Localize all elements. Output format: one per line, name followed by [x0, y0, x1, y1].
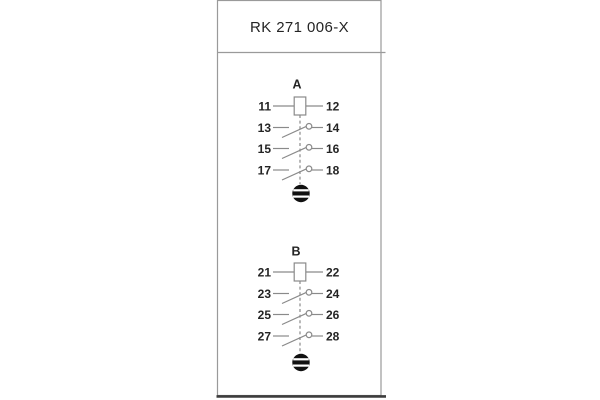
- page-title: RK 271 006-X: [250, 19, 349, 36]
- contact-row: 17 18: [258, 163, 340, 180]
- terminal-label: 21: [258, 265, 272, 279]
- contact-row: 27 28: [258, 329, 340, 346]
- terminal-label: 27: [258, 329, 272, 343]
- relay-coil-symbol: [294, 97, 306, 115]
- terminal-label: 23: [258, 287, 272, 301]
- terminal-label: 24: [326, 287, 340, 301]
- contact-row: 15 16: [258, 142, 340, 159]
- contact-point: [306, 290, 312, 296]
- terminal-label: 15: [258, 142, 272, 156]
- coil-row: 11 12: [258, 97, 339, 115]
- terminal-label: 17: [258, 163, 272, 177]
- section-label: B: [291, 245, 300, 259]
- relay-coil-symbol: [294, 263, 306, 281]
- terminal-label: 28: [326, 329, 340, 343]
- contact-point: [306, 145, 312, 151]
- terminal-label: 16: [326, 142, 340, 156]
- datasheet-page: RK 271 006-X A 11 12 13 14: [0, 0, 600, 400]
- contact-point: [306, 124, 312, 130]
- striped-circle-indicator-icon: [292, 354, 309, 371]
- schematic-svg: RK 271 006-X A 11 12 13 14: [0, 0, 600, 400]
- terminal-label: 11: [258, 99, 271, 113]
- terminal-label: 18: [326, 163, 340, 177]
- indicator-body: [292, 354, 309, 371]
- coil-row: 21 22: [258, 263, 340, 281]
- contact-row: 25 26: [258, 308, 340, 325]
- section-b: B 21 22 23 24 25: [258, 245, 340, 372]
- terminal-label: 14: [326, 121, 340, 135]
- contact-point: [306, 332, 312, 338]
- terminal-label: 12: [326, 99, 340, 113]
- terminal-label: 26: [326, 308, 340, 322]
- terminal-label: 13: [258, 121, 272, 135]
- terminal-label: 25: [258, 308, 272, 322]
- terminal-label: 22: [326, 265, 340, 279]
- contact-row: 23 24: [258, 287, 340, 304]
- striped-circle-indicator-icon: [292, 185, 309, 202]
- contact-point: [306, 311, 312, 317]
- contact-row: 13 14: [258, 121, 340, 138]
- indicator-body: [292, 185, 309, 202]
- contact-point: [306, 166, 312, 172]
- section-a: A 11 12 13 14 15: [258, 78, 340, 203]
- section-label: A: [292, 78, 301, 92]
